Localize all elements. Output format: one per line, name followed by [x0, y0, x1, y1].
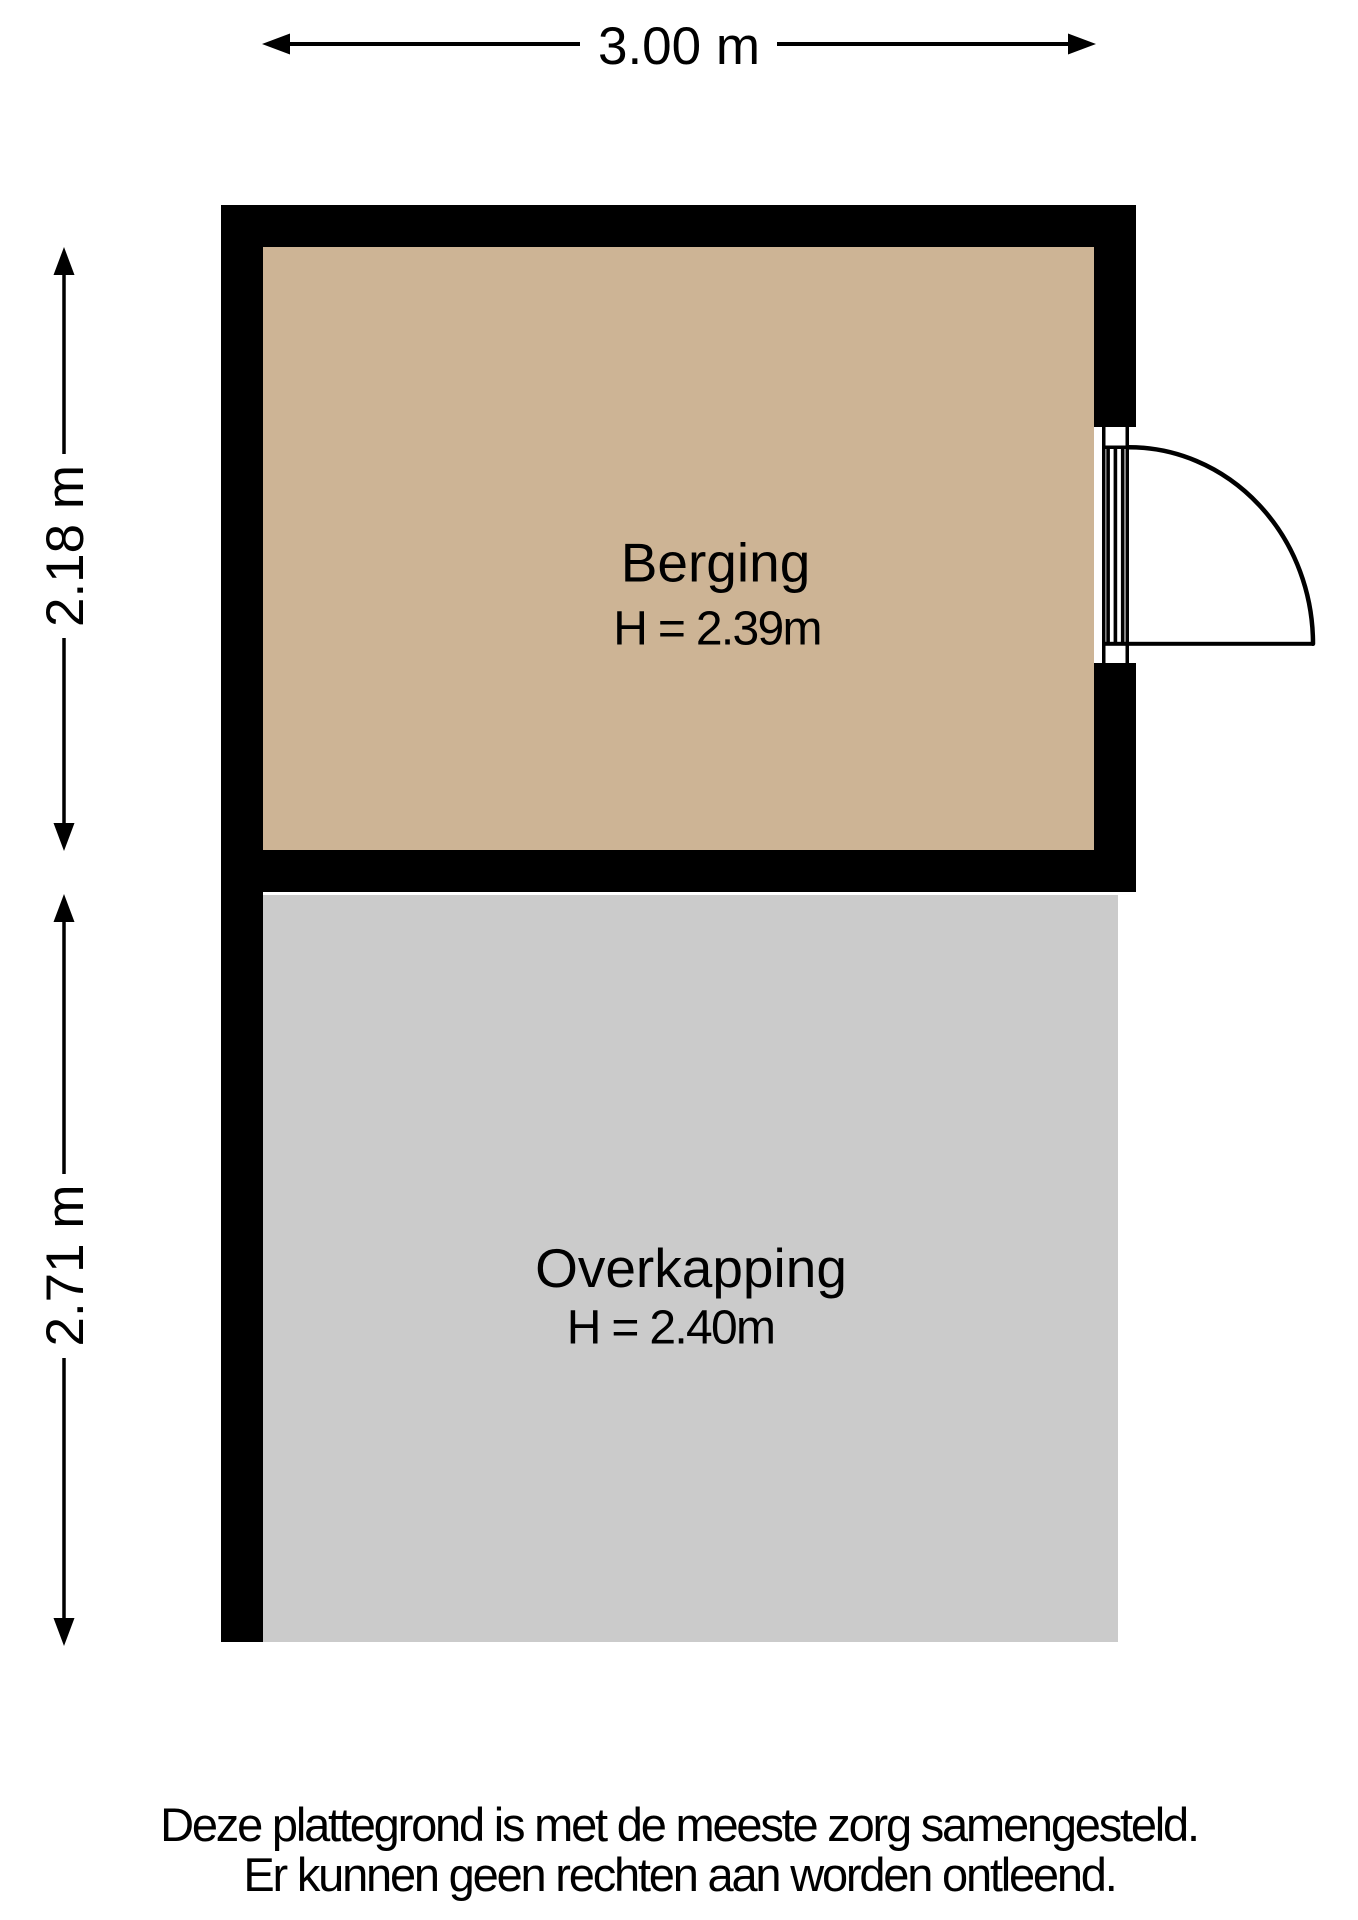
- svg-text:H = 2.40m: H = 2.40m: [567, 1302, 774, 1355]
- svg-text:Berging: Berging: [621, 532, 811, 594]
- svg-text:2.71 m: 2.71 m: [36, 1184, 95, 1346]
- svg-text:2.18 m: 2.18 m: [36, 465, 95, 627]
- svg-text:3.00 m: 3.00 m: [598, 17, 760, 76]
- svg-text:Deze plattegrond is met de mee: Deze plattegrond is met de meeste zorg s…: [160, 1798, 1198, 1851]
- svg-text:H = 2.39m: H = 2.39m: [613, 603, 820, 656]
- svg-text:Er kunnen geen rechten aan wor: Er kunnen geen rechten aan worden ontlee…: [243, 1848, 1115, 1901]
- svg-text:Overkapping: Overkapping: [535, 1237, 847, 1299]
